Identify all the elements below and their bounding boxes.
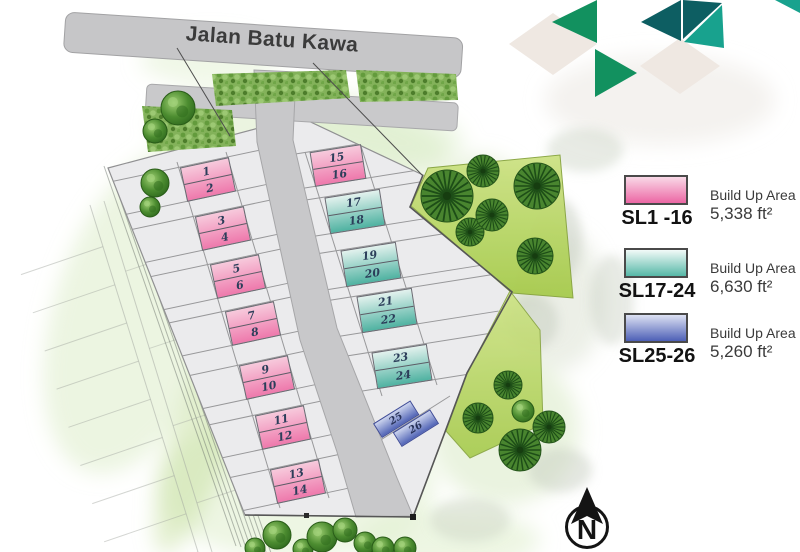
legend-item-sl1-16: SL1 -16 Build Up Area 5,338 ft² (616, 173, 800, 243)
legend-swatch-blue (624, 313, 688, 343)
legend-area-value: 5,338 ft² (710, 204, 796, 224)
legend-area-value: 5,260 ft² (710, 342, 796, 362)
lot-number: 2 (205, 181, 215, 193)
legend-item-sl25-26: SL25-26 Build Up Area 5,260 ft² (616, 311, 800, 381)
lot-number: 17 (345, 195, 362, 208)
lot-number: 6 (235, 278, 245, 290)
lot-25-26: 2526 (372, 391, 443, 455)
lot-9-10: 910 (239, 355, 295, 400)
lot-7-8: 78 (225, 301, 281, 346)
lot-number: 21 (377, 294, 394, 307)
legend-area-value: 6,630 ft² (710, 277, 796, 297)
legend-area-label: Build Up Area (710, 325, 796, 341)
lot-number: 20 (364, 266, 381, 279)
legend-code: SL17-24 (616, 280, 698, 303)
legend-code: SL25-26 (616, 345, 698, 368)
lot-number: 14 (291, 482, 308, 496)
lot-number: 23 (392, 350, 409, 363)
legend-swatch-teal (624, 248, 688, 278)
lot-number: 25 (388, 411, 405, 427)
legend-item-sl17-24: SL17-24 Build Up Area 6,630 ft² (616, 246, 800, 316)
legend-area-label: Build Up Area (710, 187, 796, 203)
lot-number: 1 (201, 165, 211, 177)
lot-11-12: 1112 (255, 405, 311, 450)
lot-number: 8 (250, 325, 260, 337)
lot-17-18: 1718 (324, 188, 385, 233)
lot-number: 19 (361, 248, 378, 261)
lot-number: 22 (380, 312, 397, 325)
lot-number: 9 (260, 363, 270, 375)
lot-number: 16 (331, 167, 348, 180)
lot-1-2: 12 (180, 157, 236, 202)
lot-number: 15 (328, 150, 345, 163)
legend-swatch-pink (624, 175, 688, 205)
lot-number: 13 (288, 466, 305, 480)
lot-number: 4 (220, 230, 230, 242)
lot-23-24: 2324 (371, 343, 432, 388)
lot-number: 26 (407, 420, 424, 436)
lot-number: 5 (231, 262, 241, 274)
lot-19-20: 1920 (340, 241, 401, 286)
lot-15-16: 1516 (310, 144, 367, 187)
lot-number: 24 (395, 368, 412, 381)
lot-number: 18 (348, 213, 365, 226)
lot-3-4: 34 (195, 206, 251, 251)
lot-number: 3 (216, 214, 226, 226)
lot-number: 7 (246, 309, 256, 321)
legend-code: SL1 -16 (616, 207, 698, 230)
lot-21-22: 2122 (356, 287, 417, 332)
legend-area-label: Build Up Area (710, 260, 796, 276)
site-plan-image: N Jalan Batu Kawa 1234567891011121314151… (0, 0, 800, 552)
lot-13-14: 1314 (270, 459, 326, 504)
lot-number: 12 (276, 428, 293, 442)
lot-5-6: 56 (210, 254, 266, 299)
lot-number: 11 (273, 412, 290, 426)
lot-number: 10 (260, 378, 277, 392)
